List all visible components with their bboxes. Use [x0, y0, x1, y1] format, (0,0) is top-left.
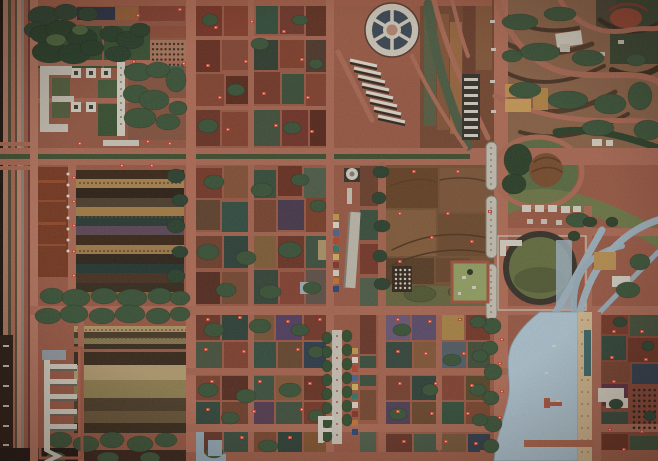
broadacre-city-model-aerial-photo	[0, 0, 658, 461]
screenshot-root	[0, 0, 658, 461]
photo-vignette-overlay	[0, 0, 658, 461]
